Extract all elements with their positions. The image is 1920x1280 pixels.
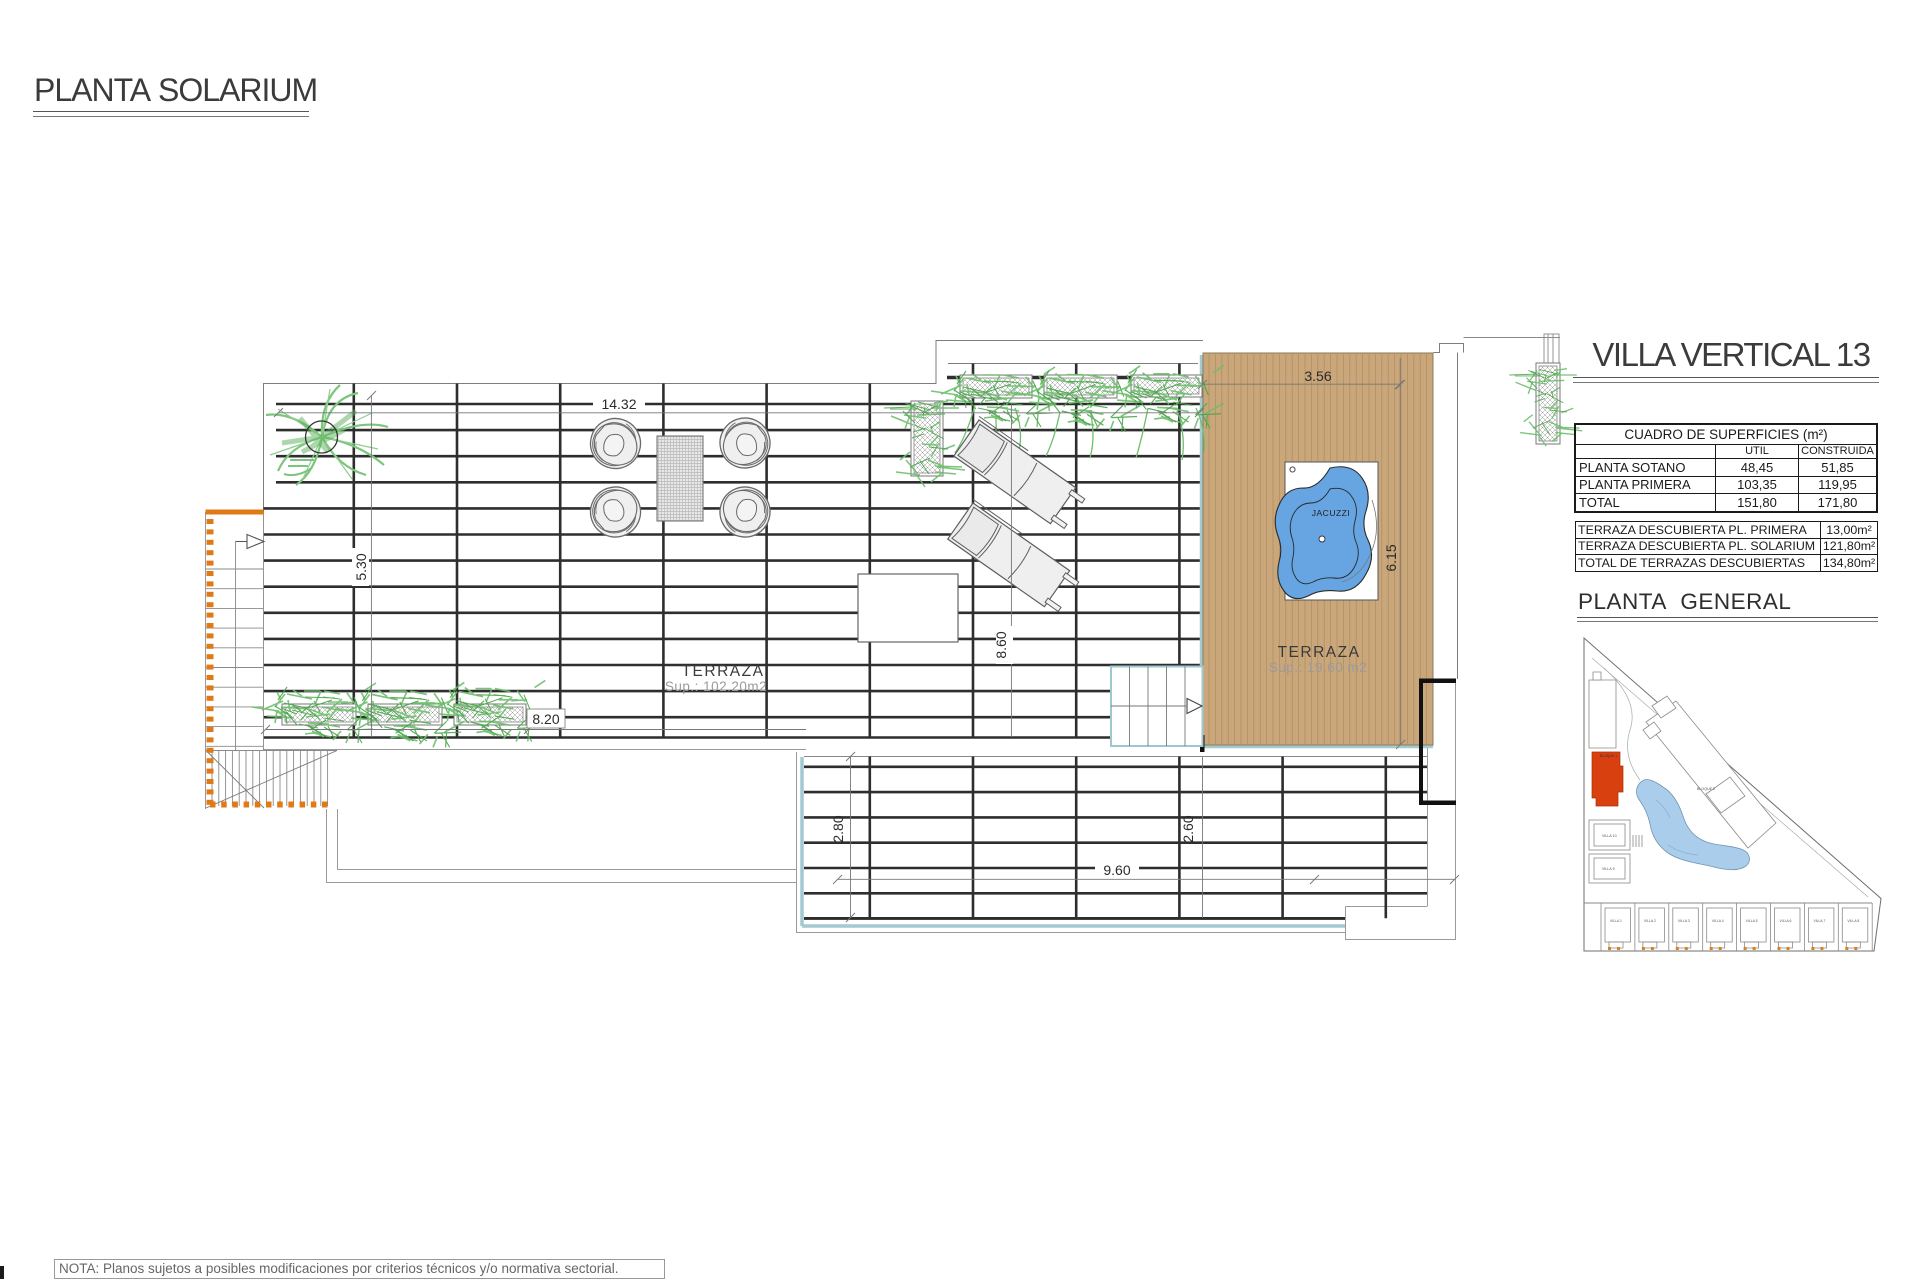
svg-text:VILLA 4: VILLA 4 bbox=[1712, 919, 1724, 923]
svg-text:2.80: 2.80 bbox=[830, 815, 846, 842]
svg-text:VILLA 5: VILLA 5 bbox=[1746, 919, 1758, 923]
svg-text:VILLA 1: VILLA 1 bbox=[1610, 919, 1622, 923]
svg-text:2.60: 2.60 bbox=[1180, 815, 1196, 842]
svg-text:8.20: 8.20 bbox=[532, 711, 559, 727]
svg-text:JACUZZI: JACUZZI bbox=[1312, 508, 1350, 518]
svg-text:VILLA 2: VILLA 2 bbox=[1644, 919, 1656, 923]
svg-text:VILLA 9: VILLA 9 bbox=[1602, 867, 1615, 871]
svg-text:TERRAZA: TERRAZA bbox=[682, 663, 765, 680]
svg-text:3.56: 3.56 bbox=[1304, 368, 1331, 384]
svg-text:TERRAZA: TERRAZA bbox=[1278, 644, 1361, 661]
svg-text:Sup.: 102.20m2: Sup.: 102.20m2 bbox=[665, 679, 767, 694]
svg-text:6.15: 6.15 bbox=[1383, 544, 1399, 571]
svg-text:VILLA 8: VILLA 8 bbox=[1847, 919, 1859, 923]
svg-text:VILLA 10: VILLA 10 bbox=[1602, 834, 1617, 838]
svg-text:9.60: 9.60 bbox=[1103, 862, 1130, 878]
svg-text:BLOQUE 1: BLOQUE 1 bbox=[1600, 754, 1617, 758]
svg-text:VILLA 7: VILLA 7 bbox=[1813, 919, 1825, 923]
svg-text:VILLA 3: VILLA 3 bbox=[1678, 919, 1690, 923]
svg-text:Sup.: 19.60 m2: Sup.: 19.60 m2 bbox=[1269, 660, 1368, 675]
svg-text:BLOQUE 2: BLOQUE 2 bbox=[1697, 787, 1715, 791]
svg-text:5.30: 5.30 bbox=[353, 553, 369, 580]
svg-text:VILLA 6: VILLA 6 bbox=[1780, 919, 1792, 923]
svg-text:14.32: 14.32 bbox=[601, 396, 636, 412]
svg-text:8.60: 8.60 bbox=[993, 631, 1009, 658]
